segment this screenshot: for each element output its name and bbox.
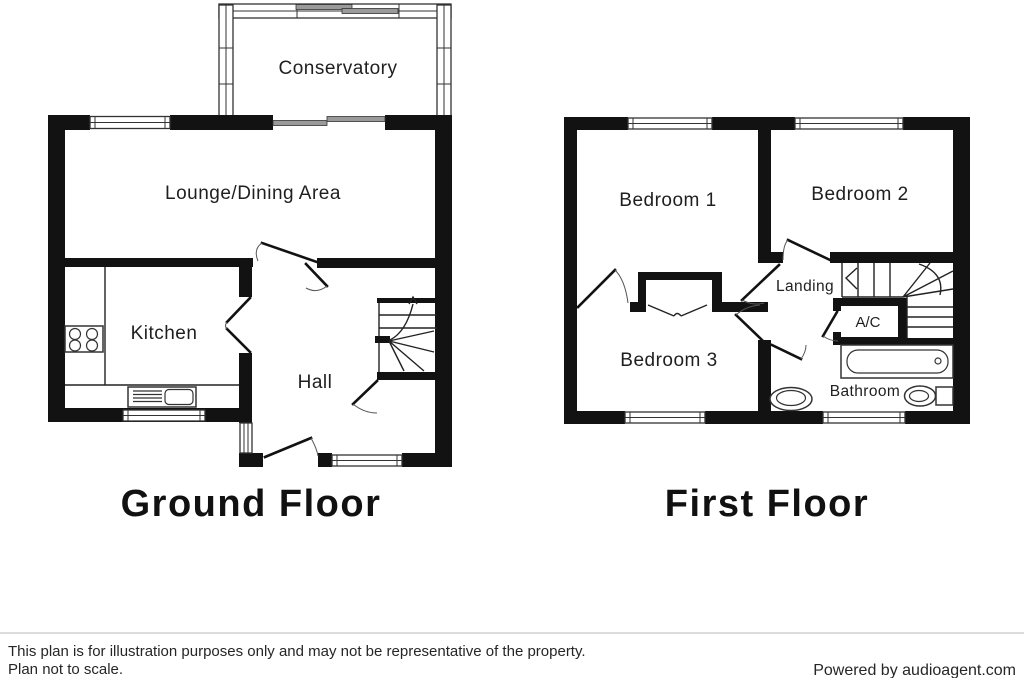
lounge-door <box>256 243 327 291</box>
conservatory-label: Conservatory <box>279 58 398 79</box>
kitchen-hob <box>65 326 103 352</box>
bathroom-label: Bathroom <box>830 383 900 400</box>
bedroom3-label: Bedroom 3 <box>620 350 717 371</box>
bedroom3-window <box>625 412 705 423</box>
first-floor-plan: Bedroom 1 Bedroom 2 Bedroom 3 Landing A/… <box>564 117 970 424</box>
bathroom-window <box>823 412 905 423</box>
lounge-window <box>90 117 170 129</box>
ac-label: A/C <box>855 314 880 331</box>
ground-staircase <box>379 297 437 372</box>
bedroom2-label: Bedroom 2 <box>811 184 908 205</box>
floorplan-image: Conservatory Lounge/Dining Area Kitchen … <box>0 0 1024 678</box>
lounge-label: Lounge/Dining Area <box>165 183 341 204</box>
floorplan-canvas: Conservatory Lounge/Dining Area Kitchen … <box>0 0 1024 678</box>
kitchen-window <box>123 410 205 421</box>
front-door <box>265 438 318 457</box>
disclaimer-line1: This plan is for illustration purposes o… <box>8 643 586 660</box>
powered-by-credit: Powered by audioagent.com <box>813 662 1016 678</box>
disclaimer-line2: Plan not to scale. <box>8 661 123 678</box>
understairs-door <box>353 381 377 413</box>
toilet <box>770 388 812 411</box>
bedroom1-window <box>628 118 712 129</box>
bathroom-door <box>772 345 806 359</box>
hall-front-window <box>332 455 402 466</box>
lounge-conservatory-sliding-door <box>273 117 385 126</box>
kitchen-sink <box>128 387 196 407</box>
bedroom1-door <box>578 270 628 307</box>
footer: This plan is for illustration purposes o… <box>0 633 1024 678</box>
hall-side-window <box>240 423 252 453</box>
bedroom2-window <box>795 118 903 129</box>
stair-direction-arrow <box>846 268 857 289</box>
kitchen-label: Kitchen <box>131 323 198 344</box>
ground-floor-title: Ground Floor <box>121 483 382 525</box>
first-floor-title: First Floor <box>665 483 869 525</box>
landing-label: Landing <box>776 278 834 295</box>
ground-floor-plan: Conservatory Lounge/Dining Area Kitchen … <box>48 4 452 467</box>
wardrobe-doors <box>648 305 707 316</box>
ground-walls <box>48 115 452 467</box>
bedroom1-label: Bedroom 1 <box>619 190 716 211</box>
kitchen-door <box>226 298 251 352</box>
basin <box>905 386 954 406</box>
hall-label: Hall <box>298 372 333 393</box>
bathtub <box>841 345 953 378</box>
